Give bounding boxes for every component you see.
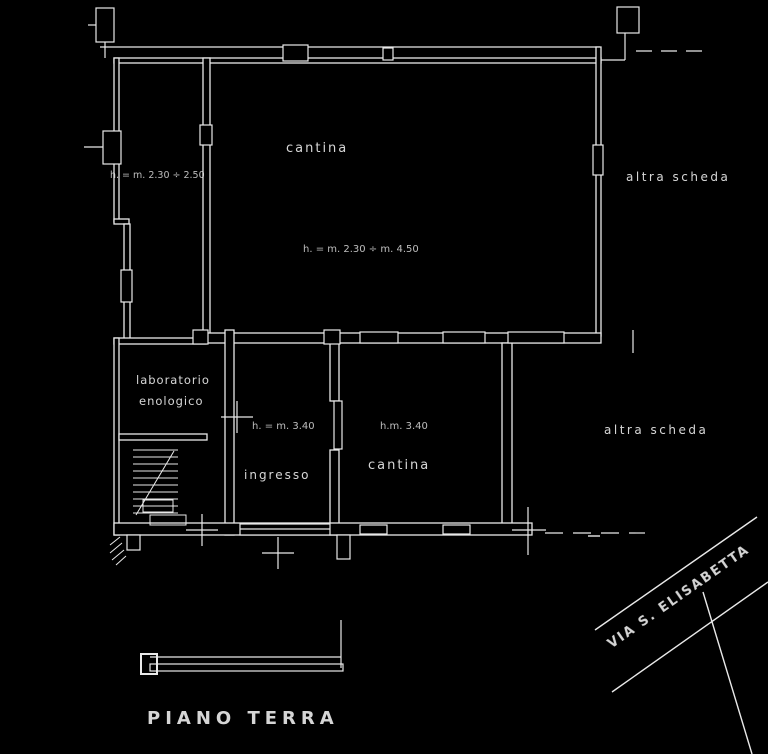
room-label-laboratory-line2: enologico: [139, 394, 203, 408]
height-note-entrance: h. = m. 3.40: [252, 421, 315, 432]
height-note-top-left-room: h. = m. 2.30 ÷ 2.50: [110, 170, 205, 181]
floor-plan-drawing: cantina h. = m. 2.30 ÷ m. 4.50 h. = m. 2…: [0, 0, 768, 754]
height-note-cellar: h.m. 3.40: [380, 421, 428, 432]
page-title: PIANO TERRA: [147, 708, 339, 729]
room-label-cellar: cantina: [368, 458, 430, 473]
annotation-altra-scheda-bottom: altra scheda: [604, 423, 708, 437]
room-label-laboratory-line1: laboratorio: [136, 373, 210, 387]
floor-plan-page: cantina h. = m. 2.30 ÷ m. 4.50 h. = m. 2…: [0, 0, 768, 754]
room-label-main-hall: cantina: [286, 141, 348, 156]
annotation-altra-scheda-top: altra scheda: [626, 170, 730, 184]
height-note-main-hall: h. = m. 2.30 ÷ m. 4.50: [303, 244, 419, 255]
room-label-entrance: ingresso: [244, 468, 310, 482]
